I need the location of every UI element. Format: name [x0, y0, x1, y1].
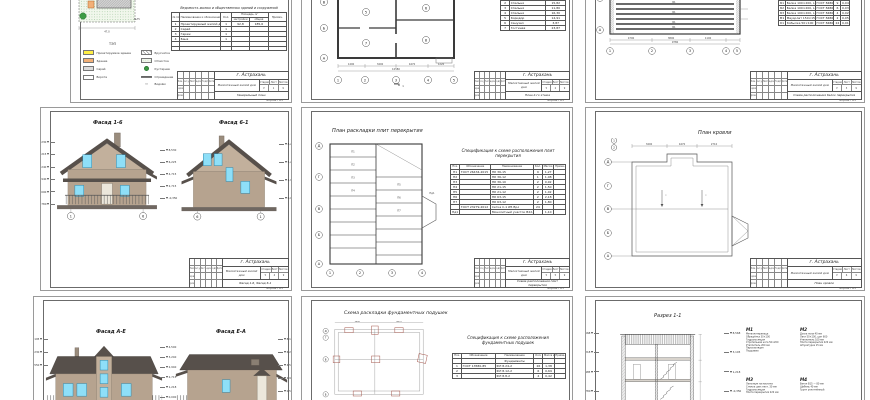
title-block-stage: СтадияЛистЛистов У59 [542, 267, 568, 278]
title-block-object: Малоэтажный жилой дом [506, 80, 542, 91]
title-block: Изм.Кол.учЛист№док.Подп.Дата Разраб. Про… [189, 258, 289, 288]
elevation-mark: 2,940 [279, 178, 292, 182]
section-node-m1: М1 МеталлочерепицаОбрешётка 30×100Гидрои… [746, 327, 796, 367]
site-number: №75 [134, 17, 140, 21]
legend-item: Проектируемое здание [83, 50, 131, 55]
title-block-city: г. Астрахань [506, 259, 568, 268]
svg-text:9780: 9780 [672, 40, 679, 44]
window [222, 380, 230, 393]
legend-swatch-hatch [141, 50, 152, 55]
legend-label: Брусчатка [155, 51, 170, 55]
svg-text:1100: 1100 [705, 36, 712, 40]
svg-text:В: В [325, 357, 327, 361]
svg-text:5: 5 [453, 78, 455, 82]
svg-text:Г: Г [318, 175, 320, 179]
spec-row: 1ГОСТ 13580-85ФЛ 8.24-2261,38 [453, 363, 566, 368]
attic-vent [251, 359, 259, 365]
legend-label: Ограждение [155, 75, 174, 79]
slab-plan-drawing: Пд1 П1 П2 П3 П4 П5 П6 П7 Д Г В Б А 1 2 3… [312, 136, 442, 278]
svg-text:П3: П3 [351, 176, 355, 180]
col-name: Наименование и обозначение [180, 13, 221, 22]
elevation-mark: 0,000 [40, 190, 55, 194]
door-opening [669, 364, 676, 379]
window [226, 168, 233, 182]
window [214, 154, 222, 166]
svg-text:6: 6 [142, 214, 144, 218]
wall-right [690, 336, 693, 400]
svg-text:3400: 3400 [355, 321, 361, 323]
tep-label: ТЭП [109, 42, 116, 46]
svg-text:П5: П5 [397, 183, 401, 187]
elevation-mark: 2,940 [160, 365, 176, 369]
elevation-mark: -0,780 [585, 389, 599, 393]
elevation-marks: 8,1956,2304,5502,9870,500 [278, 337, 291, 393]
elevation-mark: 1,218 [160, 385, 176, 389]
porch-canopy [63, 178, 151, 182]
door [257, 376, 267, 400]
svg-text:5: 5 [736, 49, 738, 53]
svg-text:Д: Д [325, 329, 327, 333]
node-line: Плита перекрытия 220 мм [746, 391, 796, 394]
col-note: Примеч. [268, 13, 286, 22]
site-legend: Проектируемое здание Здание Сарай Ворота… [83, 50, 173, 86]
node-line: Грунт уплотнённый [800, 389, 850, 392]
title-block: Изм.Кол.учЛист№док.Подп.Дата Разраб. Про… [750, 71, 862, 100]
legend-item: Ворота [83, 75, 131, 80]
side-roof-left [182, 176, 194, 184]
svg-text:2: 2 [613, 146, 615, 150]
spec-row: Пд1Монолитный участок В22,51,10 [451, 209, 566, 214]
elevation-mark: -0,350 [724, 389, 741, 393]
side-eave-left [46, 374, 56, 381]
svg-text:1: 1 [260, 215, 262, 219]
roof [180, 355, 283, 370]
porch-railing [65, 195, 149, 204]
sheet-foundation-plan: Схема раскладки фундаментных подушек 340… [301, 296, 573, 400]
svg-text:П7: П7 [397, 209, 401, 213]
buildings-table-body: 1Проектируемый жилой дом192,8185,6 2Сара… [172, 22, 287, 42]
title-block-city: г. Астрахань [506, 72, 568, 81]
beam-plan-drawing: Б1 Б1 Б1 Б1 4790 3890 1100 9780 1 2 3 4 … [594, 0, 762, 56]
window [77, 384, 87, 397]
title-block-object: Малоэтажный жилой дом [223, 267, 262, 278]
format-label: Формат А3 [547, 98, 564, 102]
svg-text:1: 1 [337, 78, 339, 82]
node-line: Штукатурка 15 мм [800, 344, 850, 347]
explication-row: 7Гостиная23,87 [501, 26, 566, 31]
facade-side-b-drawing [174, 341, 289, 400]
title-block-city: г. Астрахань [788, 259, 861, 268]
facade-title-a: Фасад 1-6 [93, 120, 122, 126]
elevation-mark: 4,550 [33, 363, 48, 367]
svg-text:1: 1 [402, 84, 404, 88]
wall-mid [655, 344, 658, 400]
foundation-spec-title: Спецификация к схеме расположения фундам… [452, 335, 564, 346]
svg-text:1: 1 [70, 214, 72, 218]
gable [68, 144, 146, 170]
site-plan-drawing: №75 47,0 [75, 0, 141, 34]
svg-text:6: 6 [425, 6, 427, 10]
elevation-mark: 4,550 [278, 363, 292, 367]
sheet-facades-a-e: Фасад А-Е Фасад Е-А 8,1956,2304,550 4,50… [33, 296, 292, 400]
elevation-mark: 0,500 [278, 389, 292, 393]
elevation-marks: 8,2305,2153,2402,9400,000-0,780 [42, 140, 55, 206]
elevation-mark: 0,000 [160, 395, 176, 399]
room-explication-table: 2Спальня15,82 3Спальня11,80 4Спальня16,3… [500, 0, 566, 31]
svg-text:7: 7 [365, 41, 367, 45]
elevation-mark: 6,230 [278, 350, 292, 354]
spec-row: 3ФЛ 8.8-240,42 [453, 373, 566, 378]
ground-line [57, 205, 157, 209]
elevation-mark: 6,230 [33, 350, 48, 354]
svg-text:1220: 1220 [438, 62, 445, 66]
title-block-stamp: Изм.Кол.учЛист№док.Подп.Дата Разраб. Про… [751, 259, 788, 287]
legend-item: Сарай [83, 66, 131, 71]
legend-swatch-white [83, 75, 94, 80]
legend-column-left: Проектируемое здание Здание Сарай Ворота [83, 50, 131, 86]
svg-text:Пд1: Пд1 [429, 191, 435, 195]
elevation-marks: 8,5685,2182,985-0,780 [587, 331, 599, 393]
title-block-stage: СтадияЛистЛистов У39 [833, 80, 861, 91]
legend-label: Отмостка [155, 59, 169, 63]
window [116, 155, 125, 168]
svg-text:2: 2 [359, 271, 361, 275]
title-block-stamp: Изм.Кол.учЛист№док.Подп.Дата Разраб. Про… [751, 72, 788, 99]
facade-title-a: Фасад А-Е [96, 329, 126, 335]
foundation-plan-title: Схема раскладки фундаментных подушек [344, 311, 448, 316]
title-block-stage: СтадияЛистЛистов У49 [261, 267, 287, 278]
window [83, 155, 92, 168]
tree-symbol [80, 13, 86, 19]
spec-row: К1Кобылка 50×100ГОСТ 8486-86240,01 [779, 21, 850, 26]
svg-text:Б1: Б1 [672, 20, 676, 24]
title-block-stage: СтадияЛистЛистов У19 [260, 80, 288, 91]
format-label: Формат А3 [266, 98, 283, 102]
legend-column-right: Брусчатка Отмостка Кустарник Ограждение … [141, 50, 173, 86]
rafter-band [625, 334, 690, 344]
buildings-table-title: Ведомость жилых и общественных зданий и … [171, 6, 287, 10]
slab-spec-table: Поз. Обозначение Наименование Кол. Масса… [450, 164, 566, 215]
elevation-mark: 8,195 [33, 337, 48, 341]
sheet-section: Разрез 1-1 8,5685,2182,985-0,780 8,5683,… [585, 296, 865, 400]
svg-text:8: 8 [425, 38, 427, 42]
title-block-stamp: Изм.Кол.учЛист№док.Подп.Дата Разраб. Про… [475, 259, 507, 287]
facade-back-drawing: 6 1 [179, 130, 279, 221]
legend-swatch-orange [83, 58, 94, 63]
elevation-mark: 8,568 [585, 331, 599, 335]
foundation-plan-drawing: 3400 4470 Д Г В Б [308, 321, 450, 400]
legend-label: Проектируемое здание [97, 51, 132, 55]
title-block-stamp: Изм.Кол.учЛист№док.Подп.Дата Разраб. Про… [190, 259, 223, 287]
legend-item: Отмостка [141, 58, 173, 63]
elevation-mark: 1,218 [724, 370, 740, 374]
legend-item: Кустарник [141, 66, 173, 71]
legend-item: Здание [83, 58, 131, 63]
format-label: Формат А3 [547, 286, 564, 290]
section-node-m4: М4 Бетон В15 — 80 ммЩебень 40 ммГрунт уп… [800, 377, 850, 397]
svg-text:Б1: Б1 [672, 10, 676, 14]
legend-label: Сарай [97, 67, 106, 71]
svg-text:П4: П4 [351, 189, 355, 193]
svg-text:4470: 4470 [396, 321, 402, 323]
svg-text:5: 5 [365, 10, 367, 14]
svg-text:Д: Д [607, 160, 610, 164]
svg-text:П1: П1 [351, 150, 355, 154]
elevation-mark: 3,240 [160, 355, 176, 359]
window [203, 154, 211, 166]
title-block-stamp: Изм.Кол.учЛист№док.Подп.Дата Разраб. Про… [178, 72, 215, 99]
elevation-mark: 3,240 [40, 165, 55, 169]
title-block-object: Малоэтажный жилой дом [788, 267, 833, 278]
title-block-stage: СтадияЛистЛистов У29 [542, 80, 568, 91]
svg-text:2: 2 [651, 49, 653, 53]
svg-text:П2: П2 [351, 163, 355, 167]
elevation-mark: 5,215 [279, 160, 292, 164]
svg-text:Б: Б [325, 392, 327, 396]
elevation-marks: 8,2305,2152,9400,000 [279, 142, 292, 200]
legend-label: Ворота [97, 75, 107, 79]
title-block: Изм.Кол.учЛист№док.Подп.Дата Разраб. Про… [474, 258, 570, 288]
dormer-roof [94, 346, 113, 357]
elevation-mark: 4,500 [160, 345, 176, 349]
ground-line [182, 207, 277, 211]
elevation-marks: 8,5683,1051,218-0,350 [724, 331, 737, 393]
sheet-facades-1-6: Фасад 1-6 Фасад 6-1 1 6 6 1 [40, 107, 292, 291]
svg-text:Г: Г [607, 184, 609, 188]
svg-text:1: 1 [329, 271, 331, 275]
elevation-mark: 4,715 [160, 172, 176, 176]
roof-bay [732, 216, 748, 246]
side-eave-left [176, 370, 188, 377]
elevation-mark: 3,105 [724, 350, 740, 354]
legend-item: ≈Водоём [141, 82, 173, 86]
legend-label: Водоём [155, 82, 166, 86]
window [120, 185, 129, 196]
bay-outline [422, 196, 436, 228]
title-block-stamp: Изм.Кол.учЛист№док.Подп.Дата Разраб. Про… [475, 72, 507, 99]
col-qty: Кол. [221, 13, 231, 22]
svg-text:Б1: Б1 [672, 0, 676, 4]
window [121, 384, 131, 397]
empty-rows [172, 42, 287, 51]
svg-text:i: i [666, 193, 667, 197]
svg-text:4790: 4790 [628, 36, 635, 40]
svg-text:3400: 3400 [646, 142, 653, 146]
section-node-m3: М3 Линолеум на мастикеСтяжка цем.-песч. … [746, 377, 796, 400]
window [100, 374, 108, 384]
svg-text:6: 6 [196, 215, 198, 219]
title-block-object: Малоэтажный жилой дом [788, 80, 833, 91]
title-block: Изм.Кол.учЛист№док.Подп.Дата Разраб. Про… [750, 258, 862, 288]
svg-text:Д: Д [318, 144, 321, 148]
svg-text:3: 3 [395, 78, 397, 82]
col-num: № поз. [172, 13, 180, 22]
elevation-mark: 5,218 [585, 350, 599, 354]
sheet-beam-plan: Б1 Б1 Б1 Б1 4790 3890 1100 9780 1 2 3 4 … [585, 0, 865, 103]
window [100, 360, 108, 370]
legend-swatch-shrub [144, 66, 149, 71]
elevation-mark: 8,195 [278, 337, 292, 341]
elevation-mark: 6,225 [160, 160, 176, 164]
sheet-genplan: №75 47,0 ТЭП Проектируемое здание Здание… [70, 0, 292, 103]
facade-title-b: Фасад 6-1 [219, 120, 248, 126]
svg-text:1: 1 [613, 139, 615, 143]
roof-plan-title: План кровли [698, 130, 732, 136]
format-label: Формат А3 [266, 286, 283, 290]
elevation-mark: 0,000 [279, 196, 292, 200]
stair-flight [660, 386, 673, 399]
legend-swatch-gray [83, 66, 94, 71]
elevation-mark: 2,715 [160, 184, 176, 188]
elevation-marks: 8,5306,2254,7152,715-0,350 [160, 148, 176, 200]
title-block-stage: СтадияЛистЛистов У69 [833, 267, 861, 278]
svg-text:1: 1 [609, 49, 611, 53]
facade-side-a-drawing [44, 341, 164, 400]
buildings-table-header: № поз. Наименование и обозначение Кол. П… [172, 13, 287, 22]
elevation-mark: 2,940 [40, 177, 55, 181]
node-line: Подшивка [746, 350, 796, 353]
elevation-mark: 2,987 [278, 376, 292, 380]
elevation-mark: 8,230 [40, 140, 55, 144]
window [241, 181, 250, 193]
svg-text:3: 3 [689, 49, 691, 53]
elevation-mark: 5,215 [40, 152, 55, 156]
window [63, 384, 73, 397]
elevation-mark: -0,780 [40, 202, 55, 206]
sheet-roof-plan: План кровли i i 3400 4470 2710 1 2 Д Г В… [585, 107, 865, 291]
foundation-spec-table: Поз. Обозначение Наименование Кол. Масса… [452, 353, 566, 379]
format-label: Формат А3 [839, 286, 856, 290]
sheet-floor-plan: 5 6 7 8 1490 3400 4470 1220 10580 1 2 3 … [301, 0, 573, 103]
elevation-mark: 8,568 [724, 331, 740, 335]
title-block: Изм.Кол.учЛист№док.Подп.Дата Разраб. Про… [474, 71, 570, 100]
svg-text:Б1: Б1 [672, 25, 676, 29]
legend-label: Кустарник [155, 67, 171, 71]
slab-spec-title: Спецификация к схеме расположения плит п… [450, 148, 566, 159]
section-node-m2: М2 Доска пола 40 ммЛаги 50×100, шаг 600У… [800, 327, 850, 357]
svg-text:2710: 2710 [711, 142, 718, 146]
section-cut-mark [394, 84, 399, 86]
format-label: Формат А3 [839, 98, 856, 102]
title-block-city: г. Астрахань [788, 72, 861, 81]
elevation-mark: 8,230 [279, 142, 292, 146]
door-opening [634, 364, 641, 379]
svg-text:3890: 3890 [668, 36, 675, 40]
legend-swatch-fence [141, 76, 152, 78]
chimney [75, 348, 79, 357]
elevation-marks: 8,1956,2304,550 [35, 337, 48, 367]
legend-item: Брусчатка [141, 50, 173, 55]
window [75, 185, 84, 196]
side-roof-right [265, 176, 277, 184]
roof-plan-drawing: i i 3400 4470 2710 1 2 Д Г В Б А [602, 138, 764, 278]
title-block-object: Малоэтажный жилой дом [506, 267, 542, 278]
window [100, 387, 108, 397]
facade-front-drawing: 1 6 [55, 130, 159, 221]
title-block-main: г. Астрахань Малоэтажный жилой дом Стади… [215, 72, 288, 99]
facade-title-b: Фасад Е-А [216, 329, 246, 335]
svg-text:2: 2 [364, 78, 366, 82]
svg-text:i: i [706, 193, 707, 197]
title-block-city: г. Астрахань [223, 259, 288, 268]
site-dimension: 47,0 [104, 30, 110, 34]
railing-left [46, 395, 56, 400]
legend-label: Здание [97, 59, 108, 63]
legend-swatch-yellow [83, 50, 94, 55]
legend-swatch-water: ≈ [141, 82, 152, 86]
elevation-marks: 4,5003,2402,9402,7151,2180,000 [160, 345, 175, 399]
beam-spec-table: Б1Балка 100×200, L=4790ГОСТ 8486-8690,04… [778, 0, 850, 26]
svg-text:10580: 10580 [392, 67, 400, 71]
section-title: Разрез 1-1 [654, 313, 681, 319]
slab-plan-title: План раскладки плит перекрытия [332, 128, 423, 134]
buildings-table: № поз. Наименование и обозначение Кол. П… [171, 12, 287, 51]
legend-swatch-dots [141, 58, 152, 63]
svg-text:3: 3 [391, 271, 393, 275]
svg-text:3400: 3400 [377, 62, 384, 66]
svg-text:1490: 1490 [348, 62, 355, 66]
svg-text:П6: П6 [397, 196, 401, 200]
svg-text:4470: 4470 [409, 62, 416, 66]
floor-plan-drawing: 5 6 7 8 1490 3400 4470 1220 10580 1 2 3 … [316, 0, 474, 88]
svg-text:4470: 4470 [679, 142, 686, 146]
section-drawing [598, 321, 724, 400]
elevation-mark: 2,985 [585, 370, 599, 374]
railing-left [176, 395, 188, 400]
wall-left [622, 336, 625, 400]
title-block-object: Малоэтажный жилой дом [215, 80, 260, 91]
sheet-slab-plan: План раскладки плит перекрытия Пд1 П1 П2… [301, 107, 573, 291]
elevation-mark: -0,350 [160, 196, 177, 200]
elevation-mark: 2,715 [160, 375, 176, 379]
title-block: Изм.Кол.учЛист№док.Подп.Дата Разраб. Про… [177, 71, 289, 100]
legend-item: Ограждение [141, 75, 173, 79]
elevation-mark: 8,530 [160, 148, 176, 152]
title-block-city: г. Астрахань [215, 72, 288, 81]
